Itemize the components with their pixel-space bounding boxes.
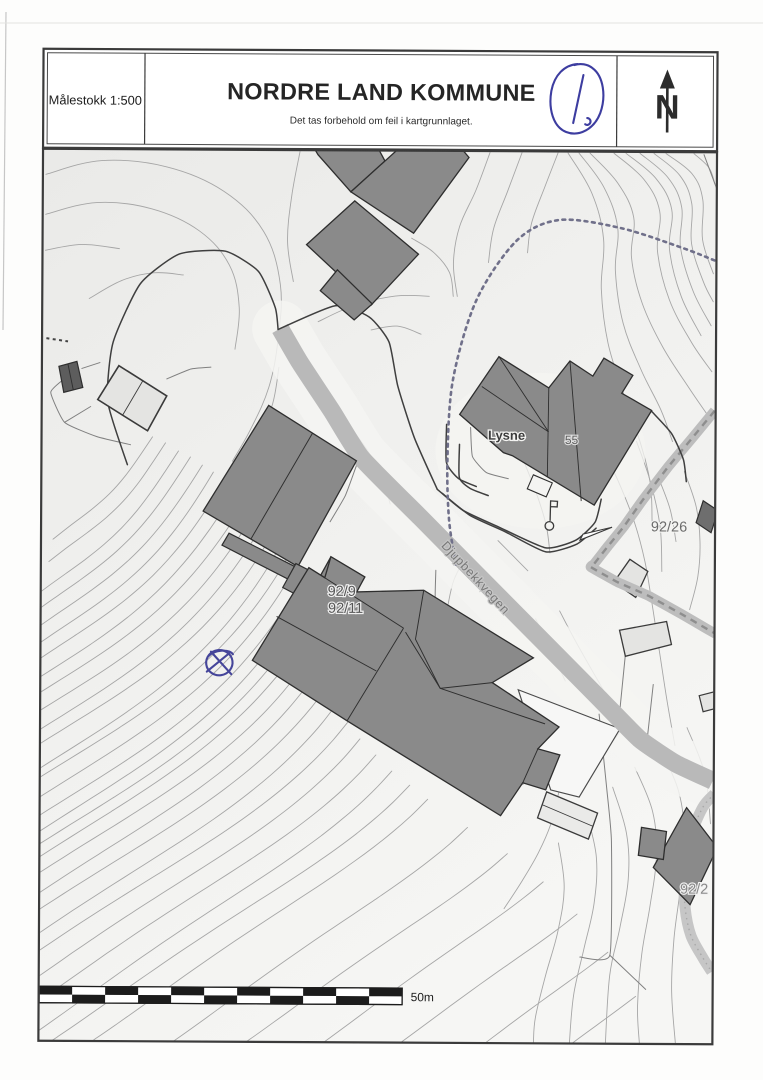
svg-text:Det tas forbehold om feil i ka: Det tas forbehold om feil i kartgrunnlag… — [290, 116, 473, 128]
svg-text:92/11: 92/11 — [328, 601, 363, 617]
svg-text:Lysne: Lysne — [488, 428, 525, 443]
svg-text:92/9: 92/9 — [328, 584, 356, 600]
svg-text:92/26: 92/26 — [651, 519, 687, 535]
svg-text:92/2: 92/2 — [680, 882, 708, 898]
svg-text:N: N — [655, 88, 680, 126]
svg-text:50m: 50m — [411, 990, 434, 1004]
svg-text:NORDRE LAND KOMMUNE: NORDRE LAND KOMMUNE — [227, 78, 536, 106]
svg-text:55: 55 — [565, 433, 579, 447]
svg-text:Målestokk 1:500: Målestokk 1:500 — [49, 92, 142, 107]
